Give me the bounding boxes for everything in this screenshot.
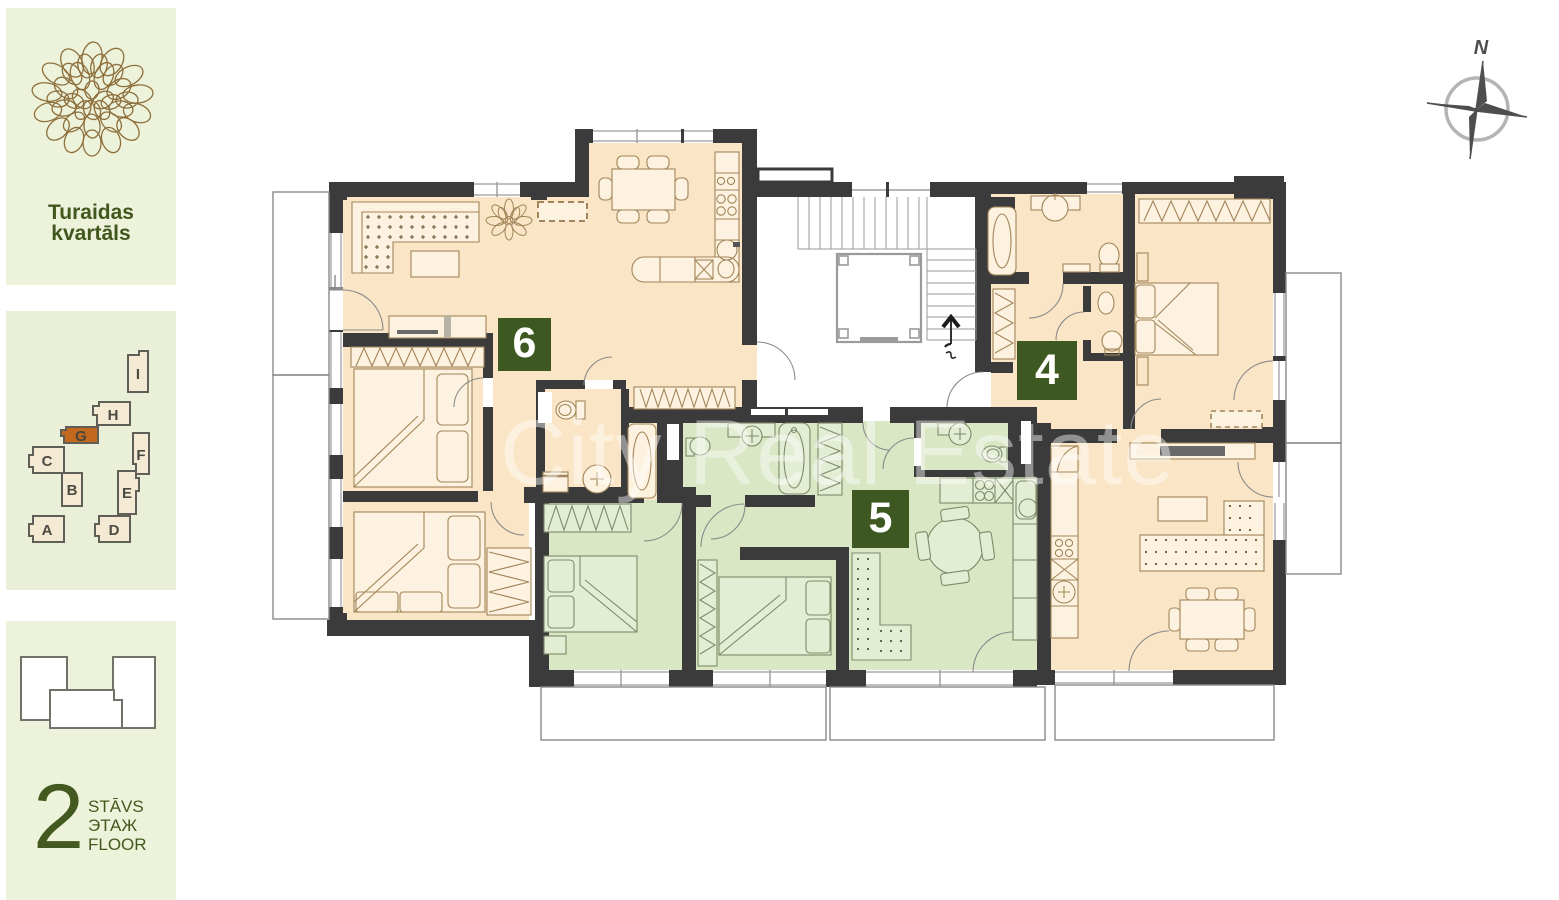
svg-text:E: E bbox=[122, 485, 132, 502]
svg-text:G: G bbox=[75, 428, 87, 445]
svg-text:H: H bbox=[108, 407, 119, 424]
svg-text:B: B bbox=[67, 482, 78, 499]
svg-text:6: 6 bbox=[513, 319, 537, 367]
svg-text:2: 2 bbox=[33, 766, 84, 868]
svg-text:ЭТАЖ: ЭТАЖ bbox=[88, 816, 137, 835]
svg-text:C: C bbox=[42, 453, 53, 470]
svg-text:FLOOR: FLOOR bbox=[88, 835, 147, 854]
svg-text:D: D bbox=[109, 522, 120, 539]
svg-text:N: N bbox=[1474, 37, 1489, 59]
svg-text:I: I bbox=[136, 366, 140, 383]
svg-text:4: 4 bbox=[1035, 346, 1059, 394]
svg-text:kvartāls: kvartāls bbox=[51, 222, 130, 245]
svg-text:F: F bbox=[136, 447, 145, 464]
svg-text:A: A bbox=[42, 522, 53, 539]
svg-text:STĀVS: STĀVS bbox=[88, 797, 144, 816]
svg-text:Turaidas: Turaidas bbox=[48, 201, 134, 224]
svg-text:City Real Estate: City Real Estate bbox=[500, 402, 1176, 504]
